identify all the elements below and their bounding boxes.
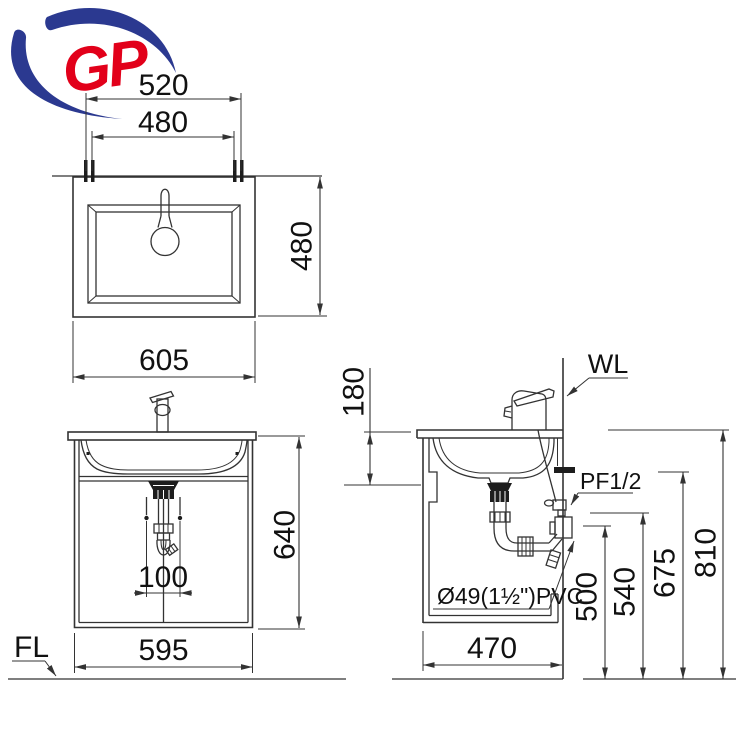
wall-supply-mark xyxy=(554,467,575,473)
vanity-installation-drawing: 520 480 480 605 xyxy=(0,0,740,740)
front-view: 100 640 595 FL xyxy=(8,392,346,680)
wall-line-label: WL xyxy=(588,349,629,379)
countertop-side xyxy=(417,430,563,438)
dim-480-depth: 480 xyxy=(286,221,319,271)
supply-size-label: PF1/2 xyxy=(580,468,641,494)
basin-side xyxy=(433,438,554,483)
drain-side-view xyxy=(487,483,572,568)
basin-outline-top xyxy=(88,205,240,303)
countertop-front xyxy=(68,432,256,440)
technical-drawing-page: GP xyxy=(0,0,740,740)
dim-605: 605 xyxy=(139,344,189,377)
side-view: WL PF1/2 Ø49(1½")PVC 180 470 xyxy=(338,349,737,679)
faucet-front-view xyxy=(150,392,174,433)
dim-675: 675 xyxy=(649,548,682,598)
dim-595: 595 xyxy=(138,634,188,667)
mounting-bolts xyxy=(84,160,244,182)
dim-810: 810 xyxy=(690,528,723,578)
dim-100: 100 xyxy=(138,561,188,594)
dim-180: 180 xyxy=(338,367,371,417)
floor-line-label: FL xyxy=(14,631,49,664)
dim-480-top: 480 xyxy=(138,106,188,139)
dim-500: 500 xyxy=(571,572,604,622)
faucet-top-view xyxy=(151,189,179,255)
dim-520: 520 xyxy=(138,69,188,102)
dim-540: 540 xyxy=(609,567,642,617)
top-view: 520 480 480 605 xyxy=(52,69,327,383)
dim-470: 470 xyxy=(467,632,517,665)
dim-640: 640 xyxy=(269,510,302,560)
drain-pipe-label: Ø49(1½")PVC xyxy=(437,583,583,609)
faucet-side-view xyxy=(504,389,554,430)
basin-front xyxy=(81,440,247,474)
